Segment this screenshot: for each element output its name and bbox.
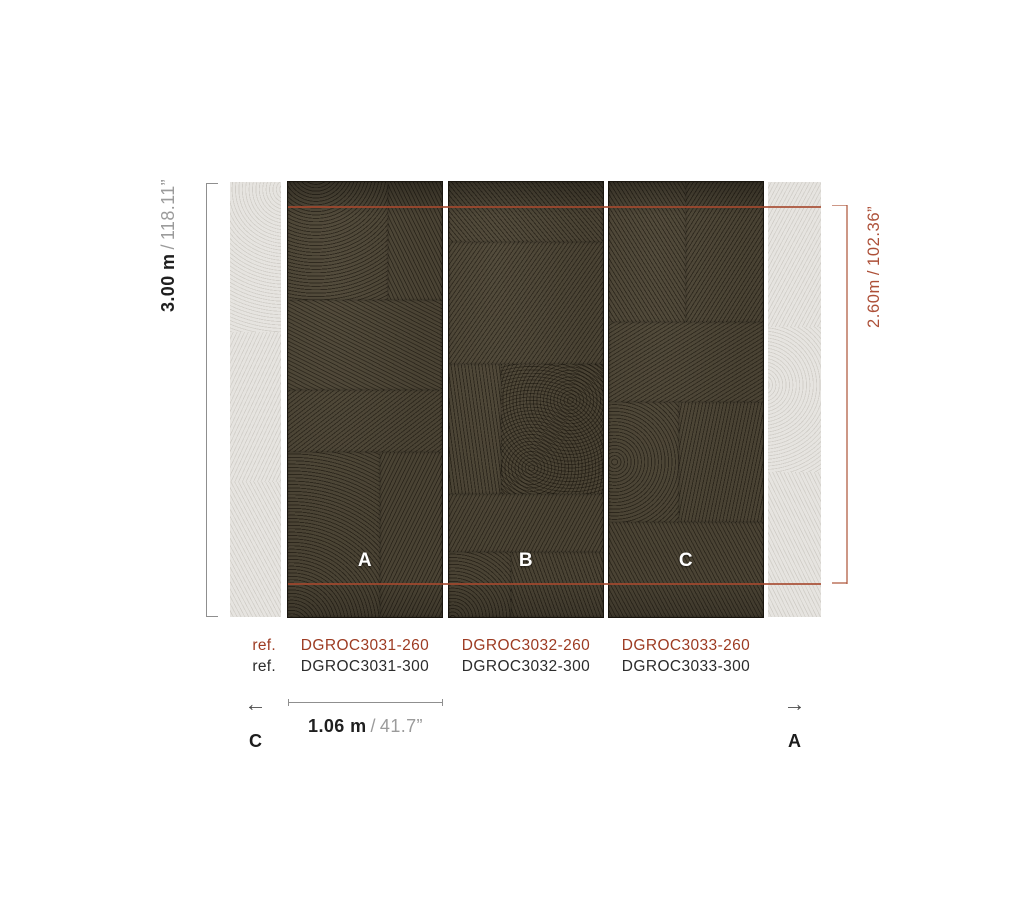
height-dimension-line xyxy=(206,183,207,617)
texture-cell xyxy=(230,182,281,332)
right-arrow-icon: → xyxy=(768,693,821,715)
panel-b: B xyxy=(449,182,603,617)
panel-b-ref-260: DGROC3032-260 xyxy=(449,637,603,655)
partial-height-imperial-value: 102.36” xyxy=(865,206,883,266)
texture-cell xyxy=(230,332,281,482)
panel-a-ref-300: DGROC3031-300 xyxy=(288,658,442,676)
height-imperial-value: 118.11” xyxy=(158,179,178,240)
panel-width-tick-left xyxy=(288,699,289,706)
partial-height-separator: / xyxy=(865,270,883,275)
edge-panel-right: → A xyxy=(768,182,821,617)
panel-c-label: C xyxy=(609,550,763,572)
panel-width-imperial-value: 41.7” xyxy=(380,716,423,736)
left-arrow-icon: ← xyxy=(230,693,281,715)
partial-height-tick-top xyxy=(832,205,847,207)
panel-a-label: A xyxy=(288,550,442,572)
crop-line-top xyxy=(288,206,821,208)
panel-b-label: B xyxy=(449,550,603,572)
height-metric-value: 3.00 m xyxy=(158,254,178,312)
panel-b-ref-300: DGROC3032-300 xyxy=(449,658,603,676)
partial-height-dimension-line xyxy=(846,205,848,584)
edge-panel-left: ← C xyxy=(230,182,281,617)
panel-a-ref-260: DGROC3031-260 xyxy=(288,637,442,655)
panel-a: A xyxy=(288,182,442,617)
panel-c-ref-260: DGROC3033-260 xyxy=(609,637,763,655)
height-separator: / xyxy=(158,244,178,249)
texture-cell xyxy=(768,182,821,327)
edge-panel-right-label: A xyxy=(768,731,821,752)
panel-c: C xyxy=(609,182,763,617)
panel-width-tick-right xyxy=(442,699,443,706)
panel-width-dimension-label: 1.06 m/41.7” xyxy=(288,716,443,737)
height-dimension-tick-bottom xyxy=(206,616,218,617)
ref-label-260: ref. xyxy=(238,637,276,655)
panel-width-dimension-line xyxy=(288,702,443,703)
height-dimension-tick-top xyxy=(206,183,218,184)
edge-panel-left-label: C xyxy=(230,731,281,752)
texture-cell xyxy=(768,327,821,472)
ref-label-300: ref. xyxy=(238,658,276,676)
crop-line-bottom xyxy=(288,583,821,585)
height-dimension-label: 3.00 m/118.11” xyxy=(158,179,179,312)
partial-height-dimension-label: 2.60m/102.36” xyxy=(865,206,884,328)
panel-width-separator: / xyxy=(371,716,376,736)
panel-width-metric-value: 1.06 m xyxy=(308,716,366,736)
partial-height-tick-bottom xyxy=(832,582,847,584)
wallcovering-panel-diagram: 3.00 m/118.11” ← C A B xyxy=(0,0,1024,908)
texture-cell xyxy=(768,472,821,617)
texture-cell xyxy=(230,482,281,617)
partial-height-metric-value: 2.60m xyxy=(865,279,883,328)
panel-c-ref-300: DGROC3033-300 xyxy=(609,658,763,676)
